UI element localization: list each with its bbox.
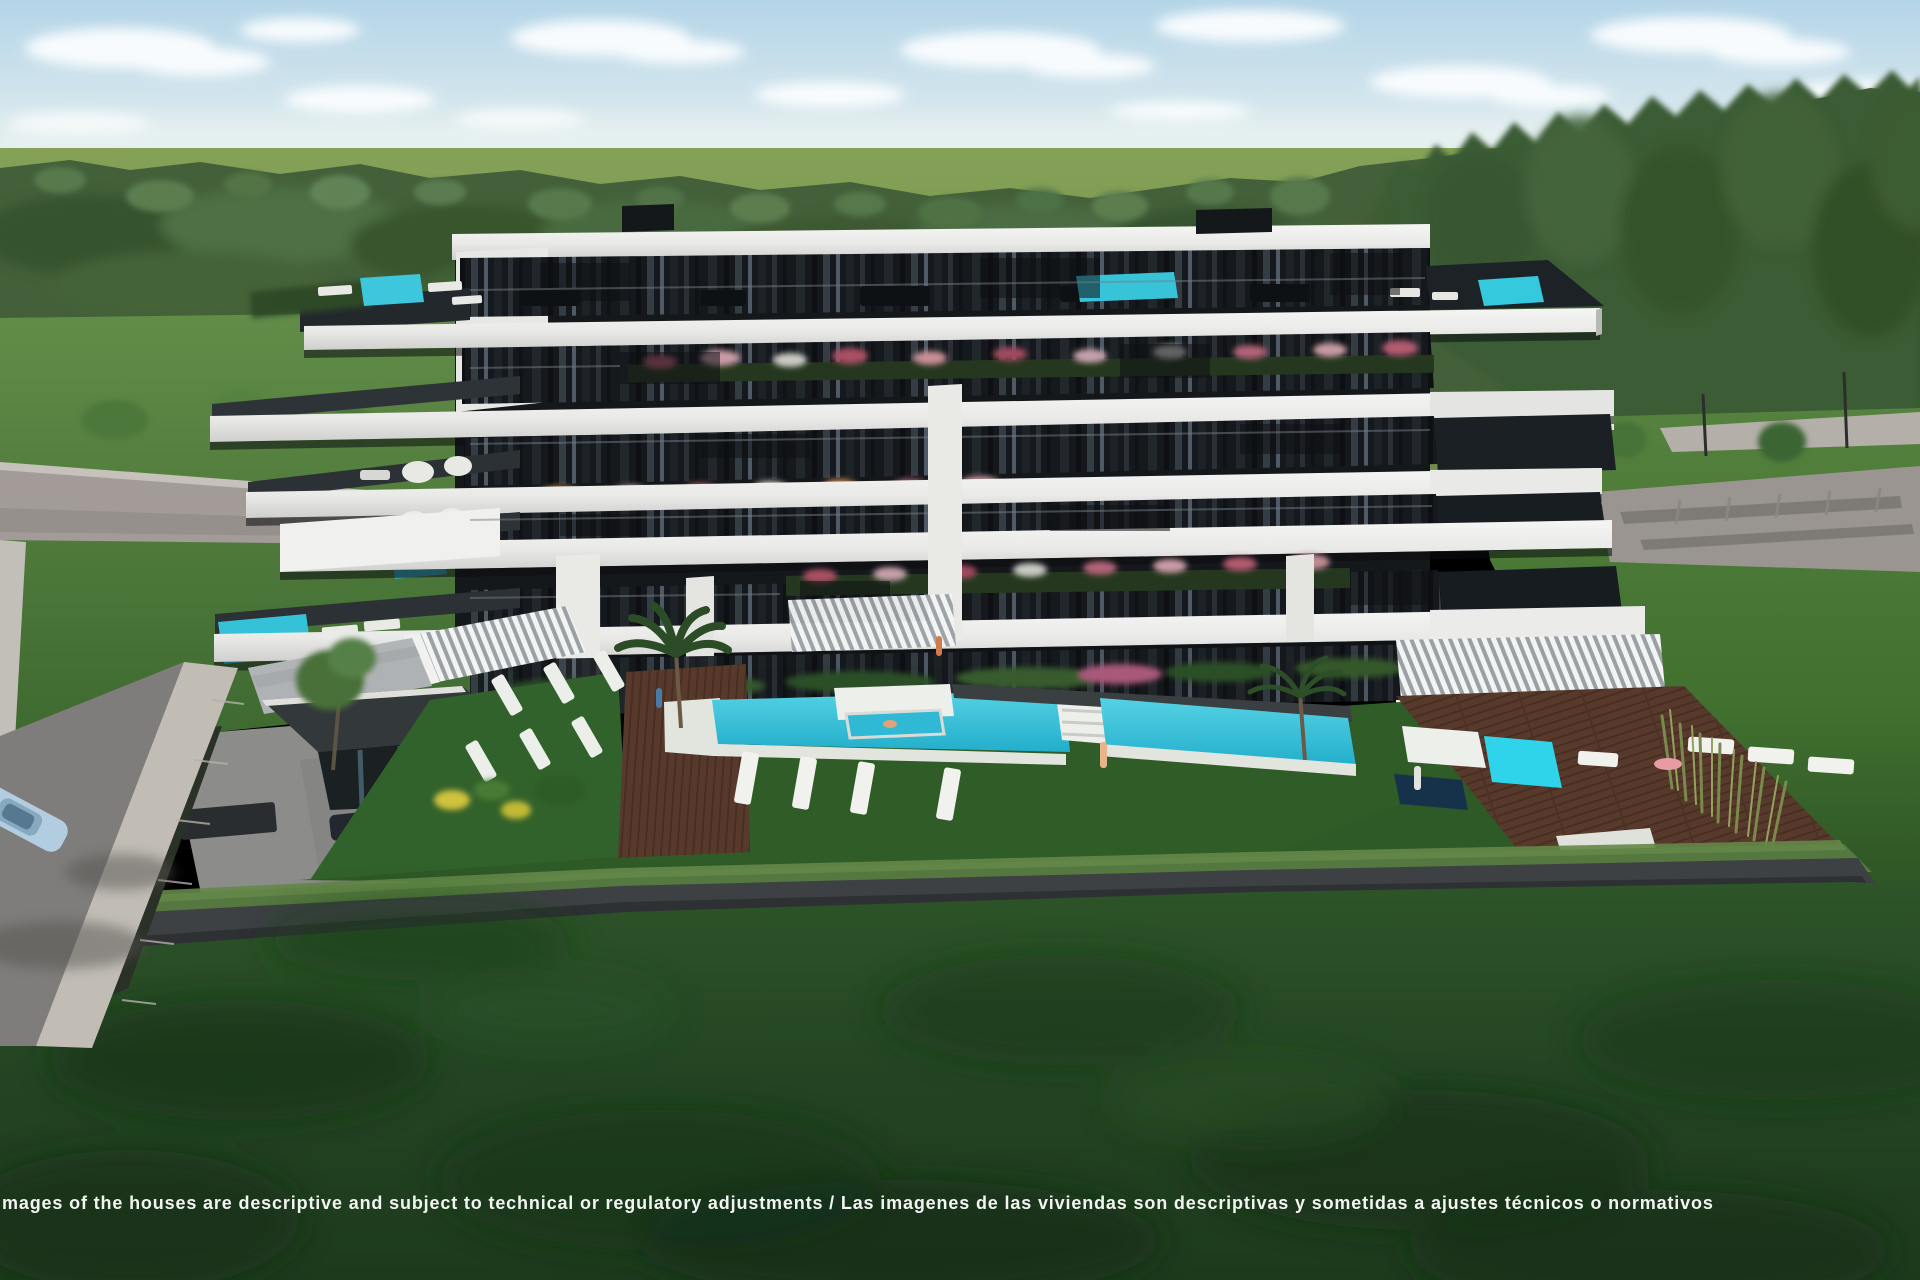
svg-text:mages of the houses are descri: mages of the houses are descriptive and … [2,1193,1714,1213]
